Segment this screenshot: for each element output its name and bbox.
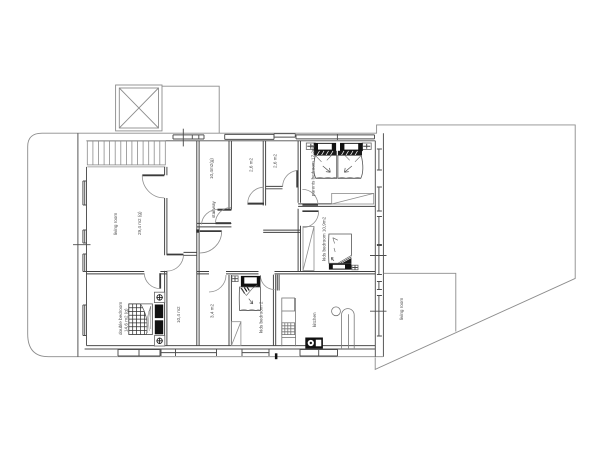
svg-text:double bedroom: double bedroom [118, 302, 123, 335]
svg-text:kids bedroom 10,9m2: kids bedroom 10,9m2 [322, 216, 327, 261]
svg-text:10,4 m2: 10,4 m2 [176, 306, 181, 323]
svg-text:kids bedroom 2: kids bedroom 2 [259, 301, 264, 333]
svg-text:parents bedroom 17,2m2: parents bedroom 17,2m2 [311, 144, 316, 196]
svg-text:kitchen: kitchen [312, 312, 317, 327]
svg-text:2,6 m2: 2,6 m2 [249, 158, 254, 172]
svg-text:14,6 m2 (g): 14,6 m2 (g) [124, 308, 129, 332]
svg-text:stairway: stairway [211, 200, 216, 218]
svg-text:living room: living room [113, 213, 118, 235]
svg-text:living room: living room [399, 298, 404, 320]
svg-text:3,4 m2: 3,4 m2 [210, 304, 215, 318]
svg-text:2,6 m2: 2,6 m2 [273, 154, 278, 168]
svg-text:10,4m2(g): 10,4m2(g) [209, 158, 214, 179]
svg-text:29,4 m2 (g): 29,4 m2 (g) [137, 211, 142, 235]
